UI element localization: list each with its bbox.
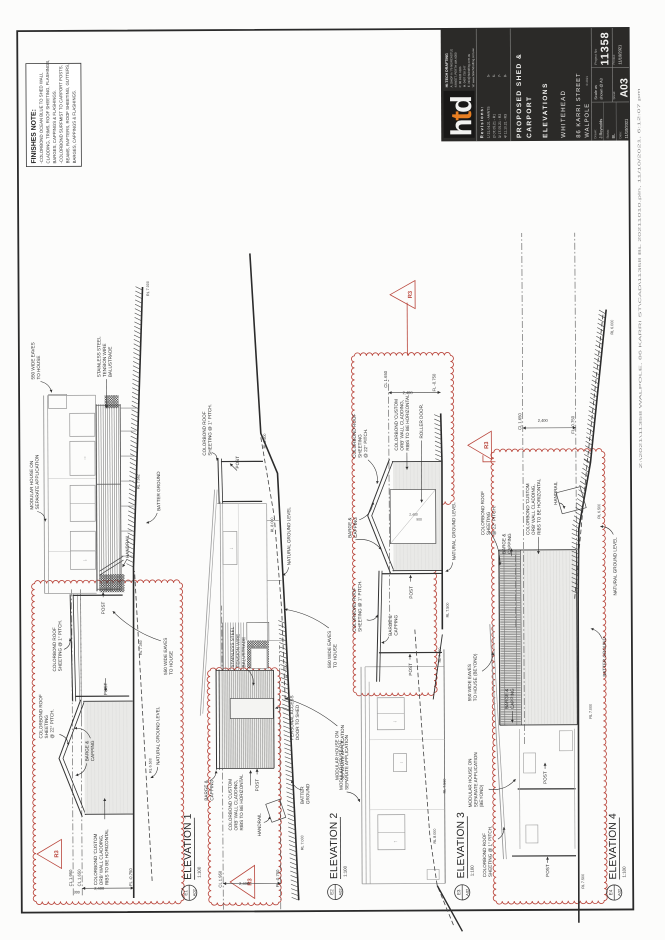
svg-text:SHEETING @ 1° PITCH.: SHEETING @ 1° PITCH.: [357, 580, 362, 631]
svg-text:E3: E3: [456, 889, 461, 895]
svg-text:86 KARRI STREET: 86 KARRI STREET: [576, 72, 582, 137]
svg-text:6-: 6-: [492, 74, 496, 77]
svg-text:A02: A02: [465, 888, 470, 896]
svg-text:SHEETING: SHEETING: [44, 715, 49, 739]
svg-text:COLORBOND 'CUSTOM: COLORBOND 'CUSTOM: [394, 399, 399, 451]
svg-text:E2: E2: [329, 889, 334, 895]
svg-text:SEPARATE APPLICATION: SEPARATE APPLICATION: [344, 735, 349, 790]
svg-text:FL -0.750: FL -0.750: [275, 869, 280, 887]
svg-text:RL 7.500: RL 7.500: [446, 603, 450, 618]
svg-text:Printed:: Printed:: [612, 54, 616, 65]
svg-text:BEAMS, RAFTERS, ROOF SHEETING,: BEAMS, RAFTERS, ROOF SHEETING, GUTTERS,: [65, 64, 71, 164]
svg-text:BARGE &: BARGE &: [504, 689, 509, 709]
svg-text:-COLORBOND SURFMIST TO CARPORT: -COLORBOND SURFMIST TO CARPORT POSTS,: [58, 65, 64, 163]
svg-text:Sheet:: Sheet:: [612, 91, 616, 100]
svg-text:POST: POST: [408, 663, 413, 676]
svg-text:RIBS TO BE HORIZONTAL: RIBS TO BE HORIZONTAL: [239, 774, 244, 831]
svg-text:↑: ↑: [393, 840, 399, 843]
svg-text:CL 1.650: CL 1.650: [383, 370, 388, 388]
svg-text:BALUSTRADE: BALUSTRADE: [241, 637, 246, 668]
svg-text:RL 6.000: RL 6.000: [610, 320, 614, 335]
svg-text:RL 7.360: RL 7.360: [438, 648, 442, 663]
svg-text:ELEVATION 2: ELEVATION 2: [329, 812, 340, 879]
svg-text:→: →: [82, 455, 88, 461]
svg-text:11/10/2021: 11/10/2021: [617, 44, 622, 65]
svg-text:NATURAL GROUND LEVEL: NATURAL GROUND LEVEL: [286, 507, 291, 566]
svg-text:5-: 5-: [486, 74, 490, 77]
svg-text:STAINLESS STEEL: STAINLESS STEEL: [96, 336, 101, 377]
svg-text:1:100: 1:100: [622, 866, 627, 878]
svg-text:2/ 07.05.21 - R1: 2/ 07.05.21 - R1: [492, 114, 496, 138]
svg-text:550 WIDE EAVES: 550 WIDE EAVES: [30, 342, 35, 379]
svg-text:MODULAR HOUSE ON: MODULAR HOUSE ON: [468, 759, 473, 808]
svg-text:COLORBOND ROOF: COLORBOND ROOF: [482, 833, 487, 877]
svg-text:WALPOLE: WALPOLE: [585, 103, 591, 138]
svg-text:2,400: 2,400: [239, 881, 250, 886]
svg-text:RIBS TO BE HORIZONTAL: RIBS TO BE HORIZONTAL: [405, 394, 410, 451]
svg-text:COLORBOND ROOF: COLORBOND ROOF: [202, 411, 207, 455]
svg-text:ELEVATIONS: ELEVATIONS: [542, 82, 549, 138]
svg-text:R e v i s i o n s :: R e v i s i o n s :: [479, 107, 484, 139]
svg-text:RL 8.500: RL 8.500: [263, 433, 267, 448]
svg-text:@ 22° PITCH.: @ 22° PITCH.: [49, 709, 54, 738]
svg-text:NATURAL GROUND LEVEL: NATURAL GROUND LEVEL: [155, 706, 160, 765]
svg-text:COLORBOND ROOF: COLORBOND ROOF: [480, 491, 485, 535]
svg-text:2,400: 2,400: [538, 418, 549, 423]
svg-text:COLORBOND ROOF: COLORBOND ROOF: [352, 588, 357, 632]
svg-text:POST: POST: [409, 586, 414, 599]
svg-text:TO HOUSE: TO HOUSE: [169, 651, 174, 675]
svg-text:900: 900: [416, 518, 422, 522]
svg-text:BARGE &: BARGE &: [388, 615, 393, 635]
svg-text:FL -0.750: FL -0.750: [570, 415, 575, 433]
svg-text:SHEETING @ 1° PITCH.: SHEETING @ 1° PITCH.: [57, 620, 62, 671]
svg-text:HANDRAIL: HANDRAIL: [257, 813, 262, 837]
svg-text:POST: POST: [545, 864, 550, 877]
svg-text:RL 8.000: RL 8.000: [270, 517, 274, 532]
svg-text:ORB' WALL CLADDING,: ORB' WALL CLADDING,: [233, 780, 238, 831]
svg-text:ORB' WALL CLADDING,: ORB' WALL CLADDING,: [531, 484, 536, 535]
svg-text:RL 8.000: RL 8.000: [433, 829, 437, 844]
svg-text:DOOR TO SHED: DOOR TO SHED: [295, 704, 300, 740]
svg-text:2,400: 2,400: [403, 390, 414, 395]
svg-text:CAPPING: CAPPING: [353, 517, 358, 538]
svg-text:TO HOUSE: TO HOUSE: [333, 644, 338, 668]
svg-text:RL 7.500: RL 7.500: [581, 874, 585, 889]
svg-text:Project No: Project No: [594, 49, 598, 65]
svg-text:FL -0.750: FL -0.750: [431, 373, 436, 391]
svg-text:RL 7.000: RL 7.000: [146, 281, 150, 296]
svg-text:SHEETING @ 1° PITCH.: SHEETING @ 1° PITCH.: [487, 826, 492, 877]
svg-text:A02: A02: [338, 888, 343, 896]
svg-text:Date:: Date:: [618, 131, 622, 138]
svg-text:MODULAR HOUSE ON: MODULAR HOUSE ON: [29, 461, 34, 510]
svg-text:R3: R3: [408, 290, 414, 298]
svg-text:BALUSTRADE: BALUSTRADE: [108, 347, 113, 378]
svg-text:(BEYOND): (BEYOND): [479, 784, 484, 807]
svg-text:CAPPING: CAPPING: [393, 615, 398, 636]
svg-text:Scale as: Scale as: [594, 85, 598, 100]
svg-text:RL 7.360: RL 7.360: [139, 640, 143, 655]
svg-text:A02: A02: [617, 888, 622, 896]
svg-text:Drawn:: Drawn:: [593, 129, 597, 139]
svg-text:-COLORBOND OCEAN BLUE TO SHED: -COLORBOND OCEAN BLUE TO SHED WALL: [38, 72, 43, 164]
svg-text:SEPARATE APPLICATION: SEPARATE APPLICATION: [35, 455, 40, 510]
svg-text:BL: BL: [611, 133, 616, 139]
svg-text:CL 1.950: CL 1.950: [218, 870, 223, 888]
svg-text:ELEVATION 3: ELEVATION 3: [456, 812, 467, 879]
svg-text:BARGE &: BARGE &: [84, 741, 89, 761]
svg-text:↓: ↓: [392, 720, 398, 723]
svg-text:COLORBOND 'CUSTOM: COLORBOND 'CUSTOM: [228, 779, 233, 831]
svg-text:300: 300: [74, 890, 80, 894]
svg-text:CARPORT: CARPORT: [526, 96, 533, 138]
svg-text:2,400: 2,400: [409, 513, 418, 517]
svg-text:E1: E1: [183, 890, 188, 896]
svg-text:@ 22° PITCH.: @ 22° PITCH.: [363, 429, 368, 458]
svg-text:550 WIDE EAVES: 550 WIDE EAVES: [327, 631, 332, 668]
svg-text:SHEETING @ 1° PITCH.: SHEETING @ 1° PITCH.: [207, 404, 212, 455]
svg-text:CAPPING: CAPPING: [90, 740, 95, 761]
svg-text:MODULAR HOUSE ON: MODULAR HOUSE ON: [338, 741, 343, 790]
svg-text:COLORBOND 'CUSTOM: COLORBOND 'CUSTOM: [93, 833, 98, 885]
svg-text:COLORBOND 'CUSTOM: COLORBOND 'CUSTOM: [525, 483, 530, 535]
svg-text:R3: R3: [484, 441, 490, 449]
svg-text:TENSION WIRE: TENSION WIRE: [102, 343, 107, 377]
svg-text:CL 1.650: CL 1.650: [77, 869, 82, 887]
svg-text:↓: ↓: [229, 547, 235, 550]
svg-text:1:100: 1:100: [470, 865, 475, 877]
svg-text:RL 7.562: RL 7.562: [137, 474, 141, 489]
svg-text:BARGE &: BARGE &: [204, 780, 209, 800]
svg-text:2,400: 2,400: [94, 886, 105, 891]
svg-text:POST: POST: [255, 779, 260, 792]
svg-text:TO HOUSE (BEYOND): TO HOUSE (BEYOND): [473, 653, 478, 701]
svg-text:CL 1.650: CL 1.650: [517, 412, 522, 430]
svg-text:1:100: 1:100: [343, 865, 348, 877]
svg-text:11/10/2021: 11/10/2021: [624, 118, 629, 139]
svg-text:↓: ↓: [82, 559, 88, 562]
svg-text:© 2021: © 2021: [585, 76, 589, 86]
svg-text:W. www.hitechdrafting.com.au: W. www.hitechdrafting.com.au: [471, 48, 475, 87]
svg-text:RL 7.000: RL 7.000: [589, 704, 593, 719]
svg-text:E4: E4: [608, 889, 613, 895]
svg-text:POST: POST: [235, 456, 240, 469]
svg-text:CL 1.950: CL 1.950: [68, 869, 73, 887]
svg-text:STAINLESS STEEL: STAINLESS STEEL: [230, 626, 235, 667]
svg-text:550 WIDE EAVES: 550 WIDE EAVES: [467, 664, 472, 701]
svg-text:TO HOUSE: TO HOUSE: [36, 356, 41, 380]
svg-text:@ 22° PITCH.: @ 22° PITCH.: [491, 506, 496, 535]
svg-text:CAPPING: CAPPING: [510, 688, 515, 709]
svg-text:ORB' WALL CLADDING,: ORB' WALL CLADDING,: [399, 400, 404, 451]
svg-text:GROUND: GROUND: [305, 783, 310, 804]
svg-text:↓: ↓: [399, 762, 404, 764]
svg-text:htd: htd: [446, 97, 478, 137]
svg-text:RL 7.560: RL 7.560: [443, 779, 447, 794]
svg-text:POST: POST: [101, 601, 106, 614]
svg-text:RL 6.500: RL 6.500: [149, 758, 153, 773]
svg-text:1:100: 1:100: [197, 866, 202, 878]
svg-text:4/ 11.10.21 - R3: 4/ 11.10.21 - R3: [503, 114, 507, 138]
svg-text:shown @ A3: shown @ A3: [599, 78, 603, 99]
svg-text:BARGE &: BARGE &: [501, 534, 506, 554]
svg-text:BATTER GROUND: BATTER GROUND: [602, 636, 607, 676]
svg-text:J.Reynolds: J.Reynolds: [598, 119, 603, 139]
svg-text:SHEETING: SHEETING: [486, 511, 491, 535]
svg-text:ROLLER DOOR.: ROLLER DOOR.: [419, 404, 424, 439]
svg-text:Status:: Status:: [606, 129, 610, 139]
svg-text:WHITEHEAD: WHITEHEAD: [560, 90, 567, 138]
svg-text:BATTER: BATTER: [300, 786, 305, 804]
svg-text:HANDRAIL: HANDRAIL: [553, 481, 558, 505]
svg-text:8-: 8-: [503, 74, 507, 77]
svg-text:RIBS TO BE HORIZONTAL: RIBS TO BE HORIZONTAL: [104, 829, 109, 886]
svg-text:RL 7.000: RL 7.000: [300, 835, 304, 850]
svg-text:BARGES, CAPPINGS & FLASHINGS.: BARGES, CAPPINGS & FLASHINGS.: [52, 90, 57, 163]
svg-text:NATURAL GROUND LEVEL: NATURAL GROUND LEVEL: [451, 502, 456, 561]
svg-text:CLADDING, TRIMS, ROOF SHEETING: CLADDING, TRIMS, ROOF SHEETING, FLASHING…: [45, 60, 51, 164]
svg-text:BARGE &: BARGE &: [347, 517, 352, 537]
svg-text:11358: 11358: [599, 32, 611, 66]
svg-text:1/ 21.04.21 - AMNTS: 1/ 21.04.21 - AMNTS: [487, 106, 491, 138]
svg-text:550 WIDE EAVES: 550 WIDE EAVES: [163, 638, 168, 675]
svg-text:SHEETING: SHEETING: [357, 434, 362, 458]
svg-text:RIBS TO BE HORIZONTAL: RIBS TO BE HORIZONTAL: [536, 478, 541, 535]
svg-text:COLORBOND ROOF: COLORBOND ROOF: [52, 627, 57, 671]
svg-text:COLORBOND ROOF: COLORBOND ROOF: [38, 694, 43, 738]
svg-text:7-: 7-: [498, 74, 502, 77]
svg-text:FINISHES NOTE:: FINISHES NOTE:: [31, 109, 38, 163]
svg-text:RL 6.500: RL 6.500: [597, 504, 601, 519]
svg-text:FL -0.750: FL -0.750: [128, 868, 133, 886]
svg-text:HANDRAIL: HANDRAIL: [125, 534, 130, 558]
svg-text:CAPPING: CAPPING: [209, 780, 214, 801]
svg-text:BARGES, CAPPINGS & FLASHINGS.: BARGES, CAPPINGS & FLASHINGS.: [72, 90, 77, 163]
svg-text:COLORBOND ROOF: COLORBOND ROOF: [352, 414, 357, 458]
svg-text:ELEVATION 1: ELEVATION 1: [183, 813, 194, 880]
svg-text:SEPARATE APPLICATION: SEPARATE APPLICATION: [473, 752, 478, 807]
svg-text:POST: POST: [543, 771, 548, 784]
svg-text:NATURAL GROUND LEVEL: NATURAL GROUND LEVEL: [612, 537, 617, 596]
svg-text:ELEVATION 4: ELEVATION 4: [608, 813, 619, 880]
svg-text:R3: R3: [54, 849, 60, 857]
svg-text:A02: A02: [192, 888, 197, 896]
svg-text:PROPOSED SHED &: PROPOSED SHED &: [516, 53, 523, 138]
svg-text:TENSION WIRE: TENSION WIRE: [235, 634, 240, 668]
svg-text:BATTER GROUND: BATTER GROUND: [156, 471, 161, 511]
svg-text:ORB' WALL CLADDING,: ORB' WALL CLADDING,: [99, 835, 104, 886]
svg-text:A03: A03: [618, 78, 630, 97]
svg-text:3/ 17.05.21 - R2: 3/ 17.05.21 - R2: [498, 114, 502, 138]
